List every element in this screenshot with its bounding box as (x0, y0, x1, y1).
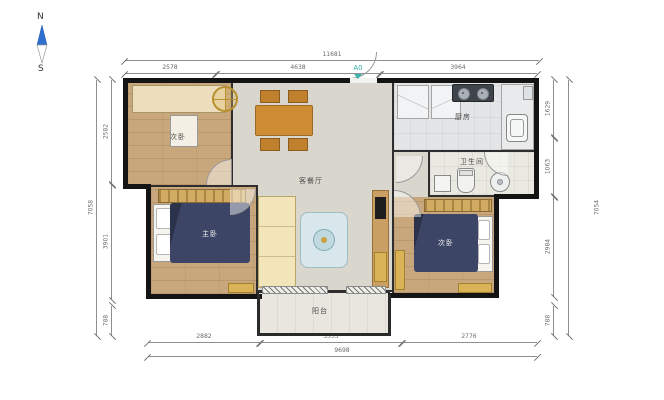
cabinet-second (395, 250, 405, 290)
dim-top-seg3: 3964 (428, 64, 488, 71)
dim-line-right-seg4 (553, 306, 554, 336)
wall-top (123, 78, 539, 83)
wall-left-upper (123, 78, 128, 189)
compass-north-label: N (37, 12, 44, 22)
wall-right-lower (494, 197, 499, 298)
second-bedroom-label: 次卧 (426, 238, 466, 248)
dim-line-top-total (125, 60, 539, 61)
kitchen-label: 厨房 (446, 112, 480, 122)
bathroom-sink-icon (434, 175, 451, 192)
sliding-door (262, 286, 328, 294)
dim-line-bottom-seg3 (402, 342, 537, 343)
compass-south-label: S (38, 64, 44, 74)
nightstand-master (228, 283, 254, 293)
dim-right-total: 7054 (594, 183, 601, 233)
dim-line-right-seg3 (553, 197, 554, 297)
dim-right-seg4: 788 (545, 296, 552, 346)
stove-burner-icon (458, 88, 470, 100)
dim-left-seg3: 788 (103, 296, 110, 346)
pillow (478, 220, 490, 240)
study-label: 次卧 (158, 132, 198, 142)
wall-bottom-master (146, 294, 262, 299)
dim-top-seg2: 4638 (268, 64, 328, 71)
dining-table (255, 105, 313, 136)
round-decor-icon (212, 86, 238, 112)
study-chair (170, 115, 198, 147)
kitchen-cabinet (397, 85, 429, 119)
stove-burner-icon (477, 88, 489, 100)
dim-line-right-seg2 (553, 138, 554, 197)
wall-balcony-bottom (257, 333, 391, 336)
dim-line-left-seg2 (111, 185, 112, 300)
sink-basin (510, 119, 524, 137)
balcony-label: 阳台 (300, 306, 340, 316)
living-dining-label: 客餐厅 (286, 176, 336, 186)
dim-line-top-seg1 (125, 73, 216, 74)
coffee-table-decor (321, 237, 327, 243)
dim-left-seg1: 2582 (103, 107, 110, 157)
dim-line-bottom-seg1 (148, 342, 260, 343)
dim-bottom-total: 9698 (312, 347, 372, 354)
wall-right-upper (534, 78, 539, 199)
tv-icon (375, 197, 386, 219)
dim-line-right-seg1 (553, 80, 554, 138)
dim-line-bottom-total (148, 356, 537, 357)
dim-top-seg1: 2578 (140, 64, 200, 71)
entry-marker-label: A0 (348, 64, 368, 72)
dim-right-seg1: 1629 (545, 84, 552, 134)
sliding-door (346, 286, 386, 294)
dim-left-total: 7058 (88, 183, 95, 233)
dim-line-top-seg3 (380, 73, 537, 74)
dining-chair (288, 90, 308, 103)
wall-bottom-second (388, 293, 499, 298)
dim-bottom-seg3: 2776 (439, 333, 499, 340)
wardrobe-second (424, 199, 492, 212)
dining-chair (260, 90, 280, 103)
tv-cabinet (374, 252, 387, 282)
toilet-tank (459, 170, 473, 176)
dim-left-seg2: 3901 (103, 217, 110, 267)
wall-balcony-left (257, 294, 260, 336)
dim-bottom-seg1: 2882 (174, 333, 234, 340)
dim-line-right-total (568, 80, 569, 336)
wall-left-lower (146, 184, 151, 299)
wall-right-step (494, 194, 539, 199)
dim-line-left-seg1 (111, 80, 112, 185)
floorplan-canvas: N S 次卧 客餐厅 厨房 卫生间 (0, 0, 664, 400)
dim-right-seg3: 2984 (545, 222, 552, 272)
dim-line-left-seg3 (111, 306, 112, 336)
dim-line-left-total (96, 80, 97, 336)
nightstand-second (458, 283, 492, 293)
entry-marker-arrow-icon (354, 74, 362, 79)
kitchen-appliance (523, 86, 533, 100)
wall-balcony-right (388, 294, 391, 336)
sofa (258, 196, 296, 288)
washing-machine-door (497, 179, 503, 185)
dim-right-seg2: 1063 (545, 142, 552, 192)
dining-chair (260, 138, 280, 151)
compass-needle-icon (31, 24, 53, 64)
master-bedroom-label: 主卧 (190, 229, 230, 239)
pillow (478, 244, 490, 264)
dining-chair (288, 138, 308, 151)
dim-line-bottom-seg2 (260, 342, 402, 343)
